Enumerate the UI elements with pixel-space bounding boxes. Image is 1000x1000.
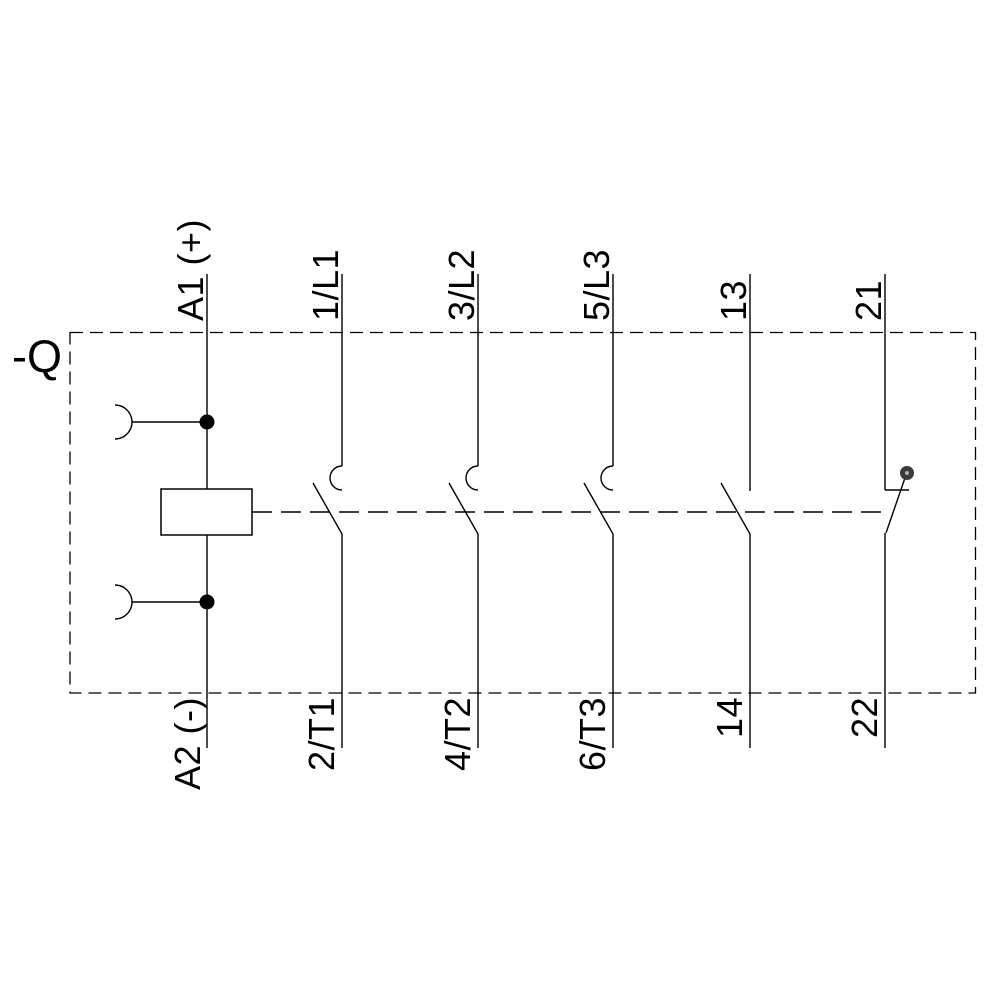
terminal-label-6t3: 6/T3 [572, 697, 613, 771]
terminal-label-3l2: 3/L2 [441, 249, 482, 321]
terminal-label-13: 13 [713, 280, 754, 321]
coil-pole: A1 (+) A2 (-) [115, 219, 252, 790]
fixed-contact-arc-icon [466, 466, 478, 490]
moving-contact-blade [313, 483, 342, 534]
fixed-contact-arc-icon [601, 466, 613, 490]
terminal-label-21: 21 [848, 280, 889, 321]
nc-contact-pivot-center-icon [905, 471, 909, 475]
terminal-label-2t1: 2/T1 [301, 697, 342, 771]
moving-contact-blade [449, 483, 478, 534]
moving-contact-blade [721, 483, 750, 534]
terminal-label-a2: A2 (-) [167, 697, 208, 790]
schematic-canvas: -Q A1 (+) A2 (-) 1/L1 2/T1 [0, 0, 1000, 1000]
moving-contact-blade [886, 475, 906, 533]
terminal-label-a1: A1 (+) [170, 219, 211, 321]
coil-terminal-socket-icon-bottom [115, 585, 132, 619]
contactor-boundary-box [70, 333, 976, 694]
aux-no-contact-pole: 13 14 [709, 274, 754, 748]
terminal-label-14: 14 [709, 697, 750, 738]
device-designation-label: -Q [12, 331, 62, 382]
terminal-label-4t2: 4/T2 [437, 697, 478, 771]
coil-terminal-socket-icon-top [115, 405, 132, 439]
aux-nc-contact-pole: 21 22 [844, 274, 914, 748]
terminal-label-5l3: 5/L3 [576, 249, 617, 321]
coil-symbol [161, 489, 252, 535]
contactor-schematic: -Q A1 (+) A2 (-) 1/L1 2/T1 [0, 0, 1000, 1000]
terminal-label-22: 22 [844, 697, 885, 738]
terminal-label-1l1: 1/L1 [305, 249, 346, 321]
fixed-contact-arc-icon [330, 466, 342, 490]
moving-contact-blade [584, 483, 613, 534]
